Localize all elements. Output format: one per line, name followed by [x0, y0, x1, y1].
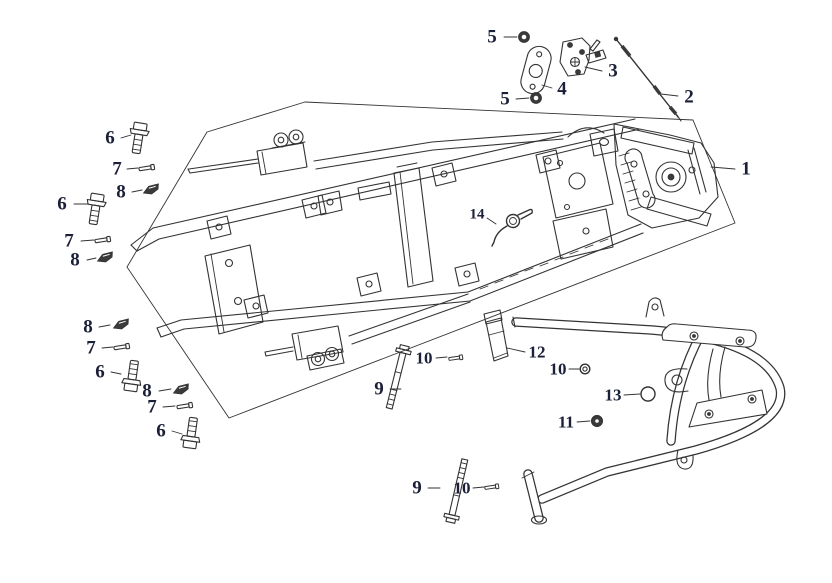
rear-mount-plate [614, 124, 718, 228]
callout-2: 2 [684, 88, 694, 107]
callout-7c: 7 [86, 339, 96, 358]
rear-carrier [513, 298, 781, 524]
clip-nut-2 [97, 252, 114, 263]
callout-3: 3 [608, 62, 618, 81]
callout-8b: 8 [70, 251, 80, 270]
support-tube [484, 310, 508, 361]
mid-bracket-cluster [543, 143, 613, 259]
callout-7b: 7 [64, 232, 74, 251]
bottom-latch-actuator [265, 294, 470, 370]
washer [580, 364, 590, 374]
lock-nut-top [519, 32, 530, 43]
callout-8a: 8 [116, 183, 126, 202]
seat-lock-cable [614, 37, 681, 121]
callout-6c: 6 [95, 363, 105, 382]
callout-6d: 6 [156, 422, 166, 441]
flange-bolt-1 [127, 122, 151, 155]
flange-bolt-3 [121, 359, 144, 392]
long-bolt-1 [382, 344, 412, 410]
callout-9a: 9 [374, 380, 384, 399]
callout-5a: 5 [487, 28, 497, 47]
ring [641, 387, 655, 401]
callout-6b: 6 [57, 195, 67, 214]
clip-nut-3 [113, 319, 130, 330]
callout-5b: 5 [500, 90, 510, 109]
callout-10c: 10 [454, 480, 471, 497]
boundary-outline [127, 102, 735, 418]
callout-6a: 6 [105, 129, 115, 148]
screw-pin-4 [177, 402, 193, 410]
lock-mount-plate [518, 44, 554, 97]
r-clip-pin [492, 209, 532, 246]
lock-nut-bottom [531, 93, 542, 104]
screw-pin-2 [95, 236, 111, 244]
clip-nut-1 [143, 184, 160, 195]
top-latch-actuator [188, 130, 563, 175]
callout-4: 4 [557, 80, 567, 99]
callout-9b: 9 [412, 479, 422, 498]
flange-bolt-2 [84, 193, 108, 226]
screw-pin-3 [114, 343, 130, 351]
parts-diagram-page: 5 3 4 5 2 1 6 7 8 6 7 8 14 8 7 6 8 7 6 1… [0, 0, 832, 583]
callout-14: 14 [470, 208, 485, 223]
callout-11: 11 [558, 414, 574, 431]
flange-bolt-4 [180, 416, 203, 449]
small-screw-1 [449, 355, 463, 362]
callout-12: 12 [529, 344, 546, 361]
screw-pin-1 [139, 164, 155, 172]
callout-10b: 10 [550, 361, 567, 378]
clip-nut-4 [173, 384, 190, 395]
callout-1: 1 [741, 160, 751, 179]
callout-8c: 8 [83, 318, 93, 337]
callout-7d: 7 [147, 398, 157, 417]
callout-10a: 10 [416, 350, 433, 367]
rail-clamps [207, 150, 560, 318]
flange-nut [592, 416, 603, 427]
callout-13: 13 [605, 387, 622, 404]
callout-7a: 7 [112, 160, 122, 179]
small-screw-2 [485, 484, 499, 491]
